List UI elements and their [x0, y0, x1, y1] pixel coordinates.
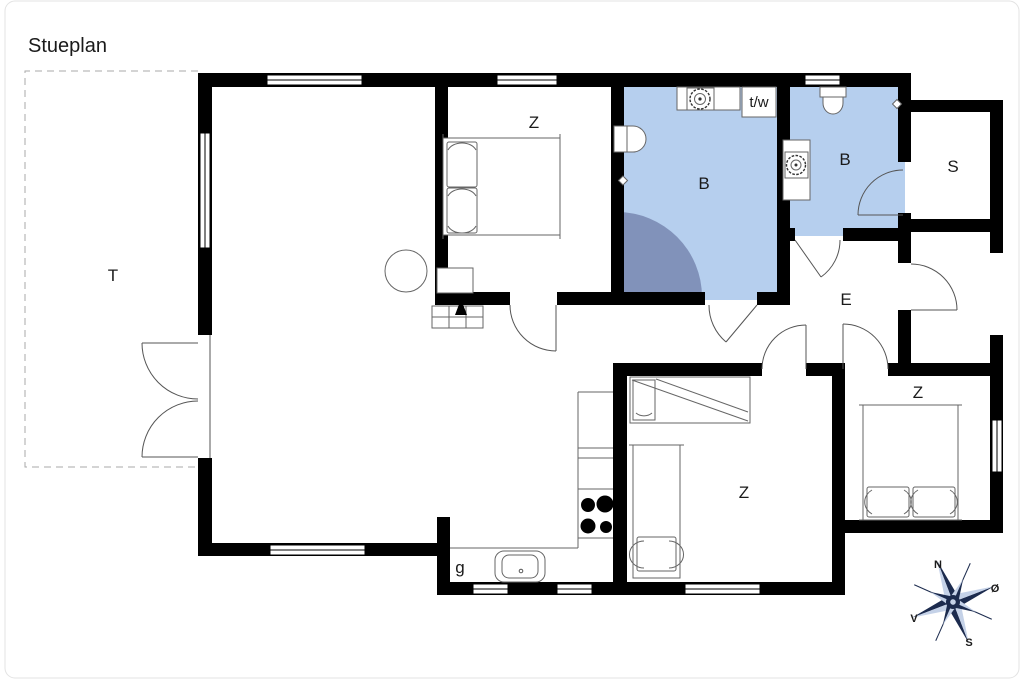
compass-east-label: Ø [991, 583, 1000, 595]
toilet-icon [614, 126, 646, 152]
sauna-label: S [947, 157, 958, 176]
window [200, 133, 210, 248]
page-title: Stueplan [28, 35, 107, 57]
terrace-label: T [108, 266, 118, 285]
compass-north-label: N [934, 559, 942, 571]
bunk-bed-icon [630, 377, 750, 423]
door-arc [795, 240, 840, 277]
bathroom-second-label: B [839, 150, 850, 169]
window [992, 420, 1002, 472]
single-bed-icon [629, 445, 684, 578]
window [685, 584, 760, 594]
window [557, 584, 592, 594]
door-arc [911, 264, 957, 310]
utility-label: g [455, 558, 464, 577]
closet [437, 268, 473, 293]
bedroom-right-label: Z [913, 383, 923, 402]
door-arc [709, 305, 757, 342]
bedroom-top-label: Z [529, 113, 539, 132]
door-arc [762, 325, 806, 369]
sink-icon [495, 551, 545, 582]
window [497, 75, 557, 85]
compass-south-label: S [965, 637, 972, 649]
stove-icon [581, 496, 614, 534]
window [473, 584, 508, 594]
sink-icon [783, 140, 810, 200]
floorplan-drawing: Stueplan T [0, 0, 1024, 682]
compass-west-label: V [910, 613, 918, 625]
compass-rose-icon: N Ø V S [896, 545, 1010, 659]
window [267, 75, 362, 85]
french-door [142, 335, 214, 458]
bathroom-main-label: B [698, 174, 709, 193]
entry-label: E [840, 290, 851, 309]
round-table-icon [385, 250, 427, 292]
door-arc [843, 324, 888, 369]
sink-icon [677, 87, 740, 110]
washer-dryer: t/w [742, 87, 776, 117]
bedroom-mid-label: Z [739, 483, 749, 502]
window [805, 75, 840, 85]
washer-dryer-label: t/w [749, 94, 768, 111]
window [270, 545, 365, 555]
door-arc [510, 305, 556, 351]
floorplan-page: Stueplan T [0, 0, 1024, 682]
double-bed-icon [859, 405, 962, 520]
double-bed-icon [443, 134, 560, 239]
